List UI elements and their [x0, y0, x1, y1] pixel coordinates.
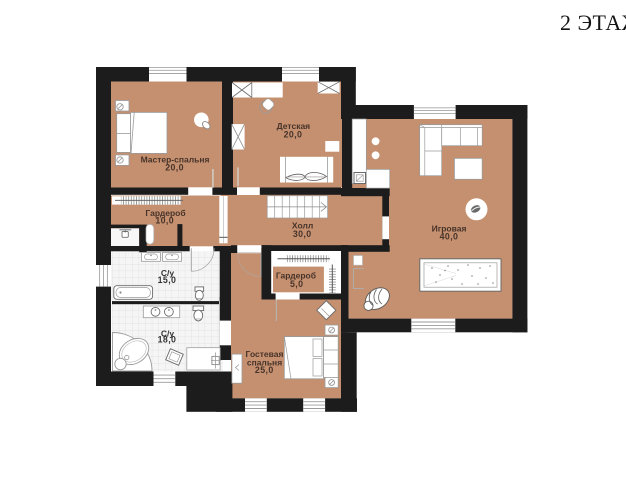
svg-text:30,0: 30,0	[293, 229, 312, 239]
svg-text:2 ЭТАЖ: 2 ЭТАЖ	[560, 10, 626, 35]
svg-text:15,0: 15,0	[158, 275, 177, 285]
svg-text:25,0: 25,0	[255, 365, 274, 375]
svg-text:40,0: 40,0	[440, 232, 459, 242]
svg-text:20,0: 20,0	[165, 163, 184, 173]
svg-text:20,0: 20,0	[284, 129, 303, 139]
svg-text:18,0: 18,0	[158, 335, 177, 345]
svg-text:10,0: 10,0	[155, 216, 174, 226]
svg-text:5,0: 5,0	[290, 279, 303, 289]
